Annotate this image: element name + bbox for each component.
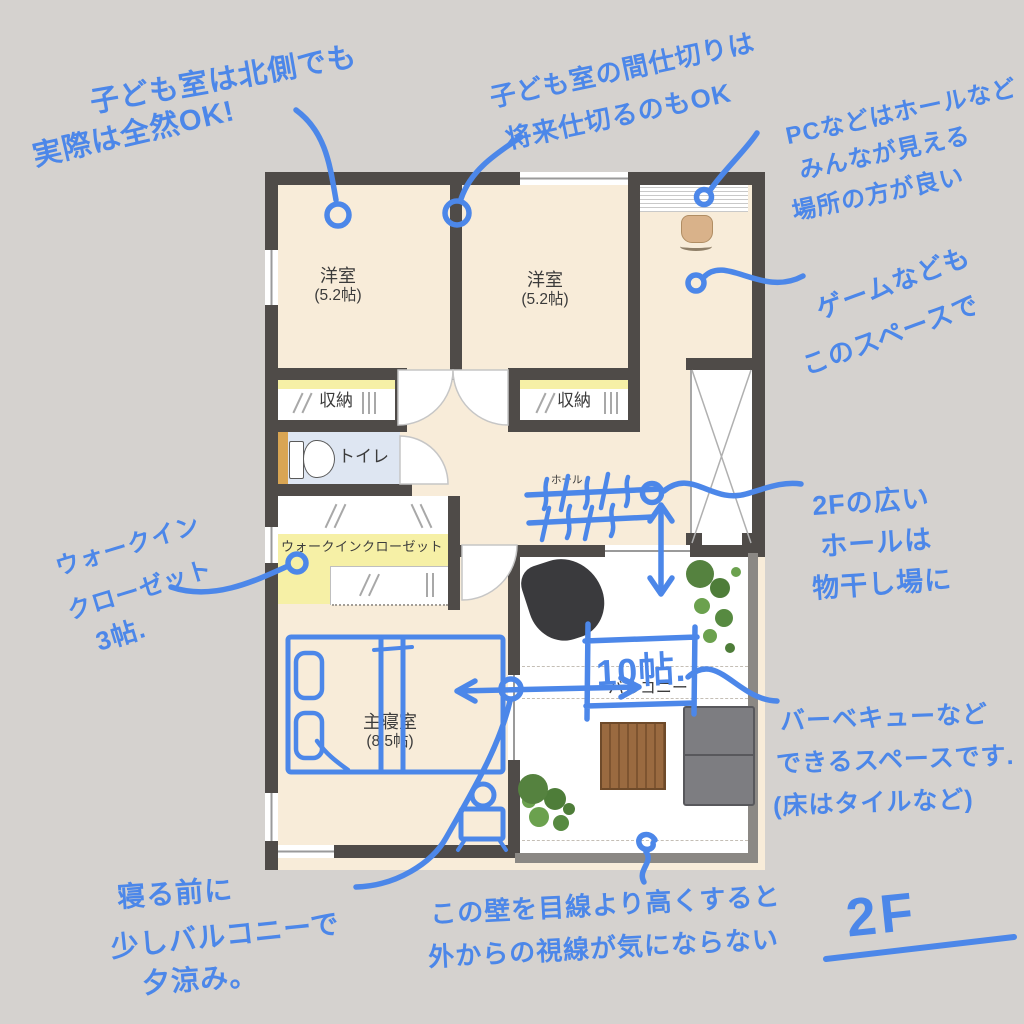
bedroom-balcony-wall-lower: [508, 760, 520, 857]
desk-chair: [681, 215, 713, 243]
master-bedroom-label: 主寝室 (8.5帖): [300, 712, 480, 751]
outdoor-bench: [683, 706, 755, 806]
closet1-label: 収納: [277, 391, 395, 411]
closet1-bottom-wall: [265, 420, 407, 432]
balcony-size-note: 10帖.: [595, 640, 688, 697]
room2-name: 洋室: [480, 270, 610, 291]
note-evening-line1: 寝る前に: [116, 868, 235, 916]
hatch-mark: [432, 573, 434, 597]
note-hall-drying-line2: ホールは: [819, 517, 933, 564]
note-bbq-line3: (床はタイルなど): [772, 780, 974, 823]
sliding-door-bedroom-balcony: [508, 675, 520, 760]
desk-chair-back: [680, 242, 712, 251]
window-bottom-bedroom: [278, 845, 334, 858]
void-stairwell: [690, 368, 757, 549]
window-left-bedroom: [265, 793, 278, 841]
outer-wall-right: [752, 172, 765, 553]
toilet-tank: [289, 441, 304, 479]
hatch-mark: [426, 573, 428, 597]
toilet-counter-strip: [277, 432, 288, 484]
floorplan-sketch-page: { "floor_label": "2F", "rooms": { "room1…: [0, 0, 1024, 1024]
balcony-top-wall-a: [515, 545, 605, 557]
potted-plant: [518, 774, 548, 804]
hall-label: ホール: [551, 474, 583, 486]
window-left-room1: [265, 250, 278, 305]
room2-size: (5.2帖): [480, 291, 610, 309]
closet2-bottom-wall: [508, 420, 640, 432]
window-left-wic: [265, 527, 278, 563]
wic-dotted-opening: [332, 604, 448, 606]
master-size: (8.5帖): [300, 733, 480, 751]
wall-below-room2: [508, 368, 640, 380]
closet2-right-wall: [628, 368, 640, 432]
note-hall-drying-line1: 2Fの広い: [811, 476, 931, 523]
void-stub-left: [686, 533, 702, 545]
wood-table: [600, 722, 666, 790]
note-evening-line3: 夕涼み。: [141, 954, 260, 1002]
wall-below-room1: [265, 368, 398, 380]
note-bbq-line1: バーベキューなど: [779, 694, 988, 737]
wall-between-kids-rooms: [450, 185, 462, 376]
wic-label: ウォークインクローゼット: [280, 540, 444, 555]
master-name: 主寝室: [300, 712, 480, 733]
wall-below-rooms-mid: [450, 368, 462, 380]
bedroom-balcony-wall-upper: [508, 557, 520, 675]
wic-shelf: [277, 496, 448, 535]
potted-plant: [686, 560, 714, 588]
window-top: [520, 172, 628, 185]
desk-counter: [640, 184, 748, 212]
balcony-wall-bottom: [515, 853, 758, 863]
outer-wall-top: [265, 172, 765, 185]
room1-size: (5.2帖): [278, 287, 398, 305]
closet2-label: 収納: [520, 391, 628, 411]
room2-label: 洋室 (5.2帖): [480, 270, 610, 309]
void-top-wall: [686, 358, 753, 370]
room1-name: 洋室: [278, 266, 398, 287]
window-hall-balcony: [605, 545, 690, 557]
toilet-bottom-wall: [265, 484, 412, 496]
room1-label: 洋室 (5.2帖): [278, 266, 398, 305]
wall-room2-hall: [628, 185, 640, 376]
floor-label-2f: 2F: [843, 880, 920, 949]
balcony-dashed-line: [522, 840, 748, 841]
void-stub-right: [742, 533, 753, 545]
hall-bedroom-stub: [448, 545, 468, 557]
bench-seam: [685, 754, 753, 756]
toilet-label: トイレ: [338, 447, 389, 467]
